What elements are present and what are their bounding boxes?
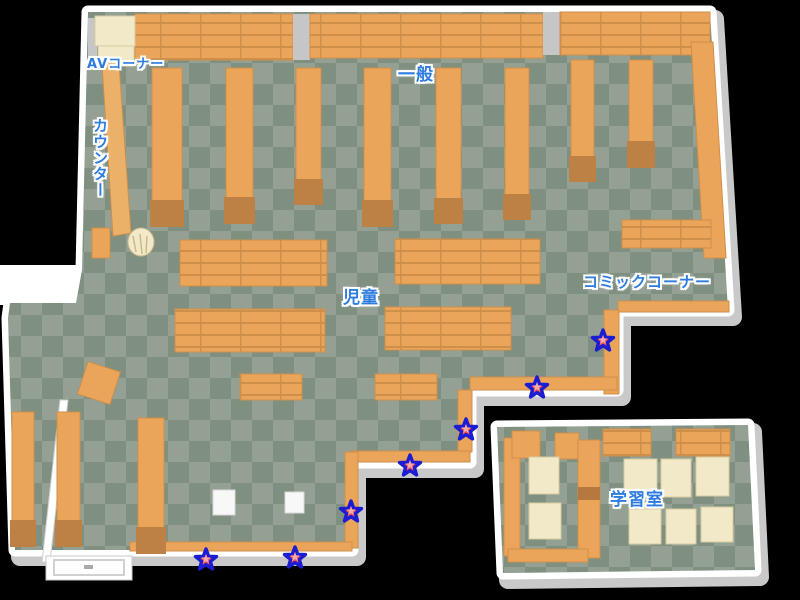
star-marker[interactable] (522, 373, 552, 403)
label-comic-corner: コミックコーナー (583, 271, 711, 292)
star-marker[interactable] (451, 415, 481, 445)
star-marker[interactable] (336, 497, 366, 527)
star-marker[interactable] (280, 543, 310, 573)
star-marker[interactable] (395, 451, 425, 481)
label-general: 一般 (398, 60, 434, 85)
floor-map-drawing (0, 0, 800, 600)
label-study-room: 学習室 (610, 485, 664, 510)
library-floor-map: AVコーナー 一般 カウンター 児童 コミックコーナー 学習室 (0, 0, 800, 600)
label-counter: カウンター (90, 118, 111, 198)
label-av-corner: AVコーナー (87, 53, 164, 72)
wall-shelving-top (135, 12, 710, 60)
entrance-door (46, 556, 132, 580)
star-marker[interactable] (191, 545, 221, 575)
star-marker[interactable] (588, 326, 618, 356)
label-children: 児童 (343, 283, 379, 308)
